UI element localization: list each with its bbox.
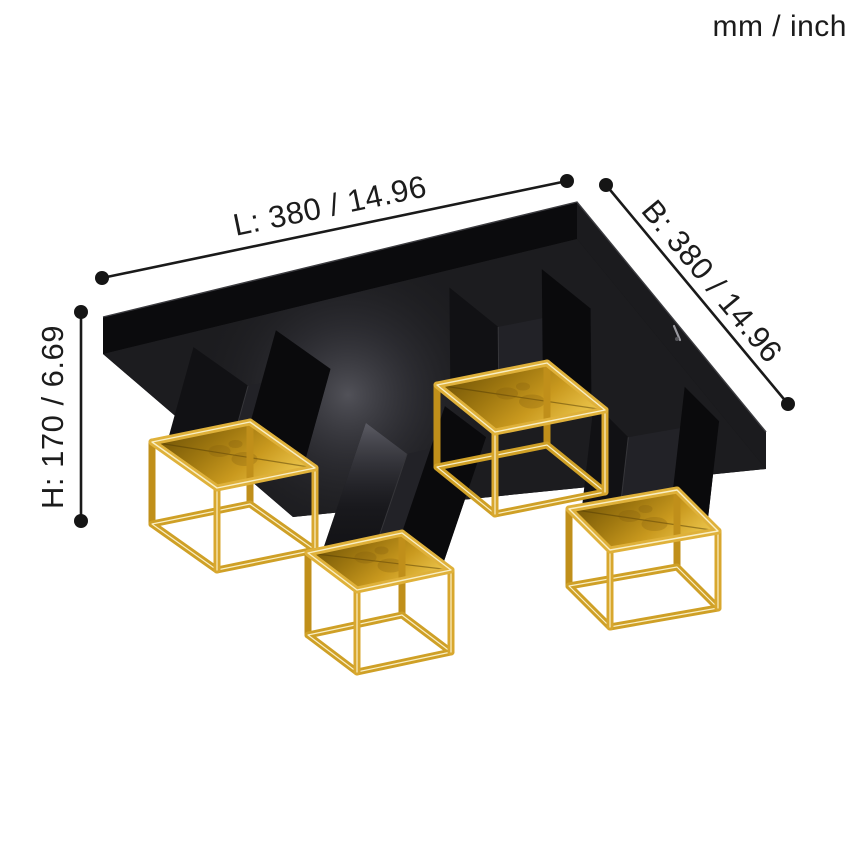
cube-shade-right bbox=[569, 490, 718, 627]
lamp-dimension-illustration: L: 380 / 14.96 B: 380 / 14.96 H: 170 / 6… bbox=[0, 0, 868, 868]
dimension-length-dot-start bbox=[95, 271, 109, 285]
gold-leaf-mottle-0 bbox=[496, 388, 518, 400]
gold-leaf-mottle-2 bbox=[639, 505, 653, 513]
frame-bottom-glow bbox=[308, 615, 451, 672]
dimension-width-dot-start bbox=[599, 178, 613, 192]
gold-leaf-mottle-2 bbox=[375, 547, 389, 555]
gold-leaf-mottle-1 bbox=[519, 395, 545, 409]
gold-leaf-mottle-0 bbox=[355, 552, 377, 564]
gold-leaf-mottle-2 bbox=[229, 440, 243, 448]
cube-shade-front bbox=[308, 533, 451, 672]
dimension-height-label: H: 170 / 6.69 bbox=[35, 325, 70, 509]
frame-bottom-square bbox=[308, 615, 451, 672]
dimension-height-dot-bottom bbox=[74, 514, 88, 528]
dimension-height-dot-top bbox=[74, 305, 88, 319]
frame-bottom-square bbox=[569, 567, 718, 627]
dimension-length-dot-end bbox=[560, 174, 574, 188]
dimension-width-dot-end bbox=[781, 397, 795, 411]
product-dimension-diagram: mm / inch bbox=[0, 0, 868, 868]
gold-leaf-mottle-1 bbox=[232, 452, 258, 466]
mounting-screw-tip bbox=[675, 337, 679, 341]
gold-leaf-mottle-0 bbox=[619, 510, 641, 522]
units-label: mm / inch bbox=[712, 10, 847, 44]
gold-leaf-mottle-0 bbox=[209, 445, 231, 457]
gold-leaf-mottle-1 bbox=[642, 517, 668, 531]
gold-leaf-mottle-2 bbox=[516, 383, 530, 391]
dimension-height: H: 170 / 6.69 bbox=[35, 305, 88, 528]
ceiling-lamp bbox=[103, 202, 766, 672]
